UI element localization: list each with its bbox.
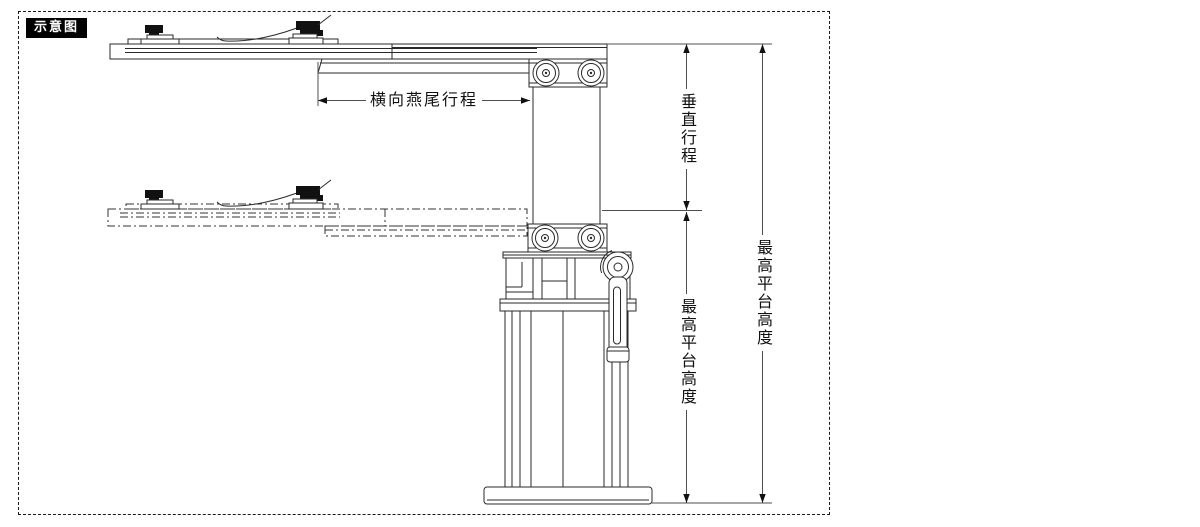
figure-badge: 示意图 [26, 18, 87, 38]
arrow-down-icon [759, 494, 765, 503]
arrow-right-icon [521, 97, 530, 103]
column-bottom-block [528, 224, 607, 252]
phantom-clamp-right [217, 180, 331, 209]
column-top-block [529, 59, 607, 87]
dovetail-beam [318, 59, 530, 73]
label-max-platform-height-mid: 最高平台高度 [678, 294, 696, 410]
screw-icon [578, 225, 604, 251]
lift-mechanism-drawing [0, 0, 1200, 527]
label-dovetail-travel: 横向燕尾行程 [366, 91, 482, 109]
arrow-down-icon [683, 494, 689, 503]
arrow-up-icon [683, 44, 689, 53]
screw-icon [532, 225, 558, 251]
label-max-platform-height-right: 最高平台高度 [754, 235, 772, 351]
arrow-up-icon [759, 44, 765, 53]
lift-column [533, 87, 600, 224]
base-plate [484, 487, 652, 504]
schematic-figure: 示意图 横向燕尾行程 垂直行程 最高平台高度 最高平台高度 [0, 0, 1200, 527]
screw-icon [578, 60, 604, 86]
top-platform-assembly [110, 39, 607, 59]
screw-icon [533, 60, 559, 86]
label-vertical-travel: 垂直行程 [678, 89, 696, 169]
top-clamp-left [141, 25, 179, 44]
phantom-clamp-left [141, 190, 179, 209]
arrow-up-icon [683, 212, 689, 221]
arrow-down-icon [683, 201, 689, 210]
arrow-left-icon [318, 97, 327, 103]
